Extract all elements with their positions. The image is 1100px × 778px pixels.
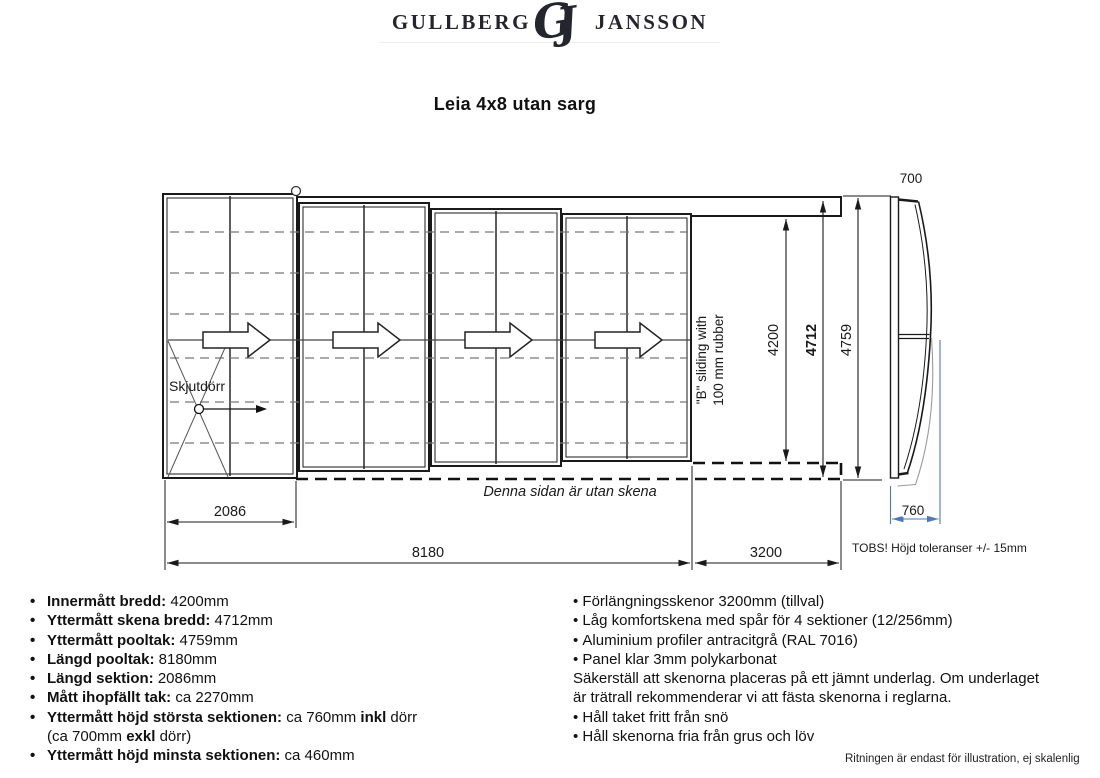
sliding-door-label: Skjutdörr (169, 378, 225, 394)
b-sliding-note-line2: 100 mm rubber (711, 314, 726, 406)
note-item: Håll taket fritt från snö (573, 708, 1100, 727)
dim-4759: 4759 (839, 324, 855, 356)
note-item: Förlängningsskenor 3200mm (tillval) (573, 592, 1100, 611)
note-item: Säkerställ att skenorna placeras på ett … (573, 669, 1100, 708)
notes-list: Förlängningsskenor 3200mm (tillval)Låg k… (573, 592, 1100, 746)
note-item: Aluminium profiler antracitgrå (RAL 7016… (573, 631, 1100, 650)
note-item: Panel klar 3mm polykarbonat (573, 650, 1100, 669)
dim-4712: 4712 (804, 324, 820, 356)
b-sliding-note-line1: "B" sliding with (694, 316, 709, 404)
dim-8180: 8180 (412, 545, 444, 561)
note-item: Håll skenorna fria från grus och löv (573, 727, 1100, 746)
footer-disclaimer: Ritningen är endast för illustration, ej… (845, 753, 1080, 765)
dim-760: 760 (902, 503, 925, 518)
spec-item: Yttermått pooltak: 4759mm (28, 631, 558, 650)
spec-item: Längd pooltak: 8180mm (28, 650, 558, 669)
dim-2086: 2086 (214, 504, 246, 520)
pivot-pin-icon (292, 187, 301, 196)
spec-item: Yttermått höjd största sektionen: ca 760… (28, 708, 558, 747)
door-profile-outline (898, 338, 933, 486)
note-item: Låg komfortskena med spår för 4 sektione… (573, 611, 1100, 630)
tolerance-note: TOBS! Höjd toleranser +/- 15mm (852, 541, 1027, 555)
dim-700: 700 (900, 171, 923, 186)
spec-item: Yttermått skena bredd: 4712mm (28, 611, 558, 630)
dim-4200: 4200 (766, 324, 782, 356)
spec-item: Mått ihopfällt tak: ca 2270mm (28, 688, 558, 707)
specs-list: Innermått bredd: 4200mmYttermått skena b… (28, 592, 558, 766)
no-rail-side-label: Denna sidan är utan skena (483, 484, 656, 500)
end-view (891, 197, 933, 486)
spec-item: Yttermått höjd minsta sektionen: ca 460m… (28, 746, 558, 765)
dim-3200: 3200 (750, 545, 782, 561)
spec-item: Längd sektion: 2086mm (28, 669, 558, 688)
spec-item: Innermått bredd: 4200mm (28, 592, 558, 611)
